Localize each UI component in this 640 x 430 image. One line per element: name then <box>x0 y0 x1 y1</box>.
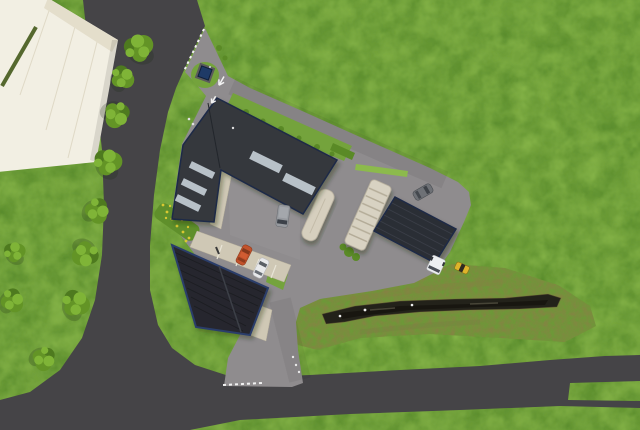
aerial-render <box>0 0 640 430</box>
site-plan-svg <box>0 0 640 430</box>
